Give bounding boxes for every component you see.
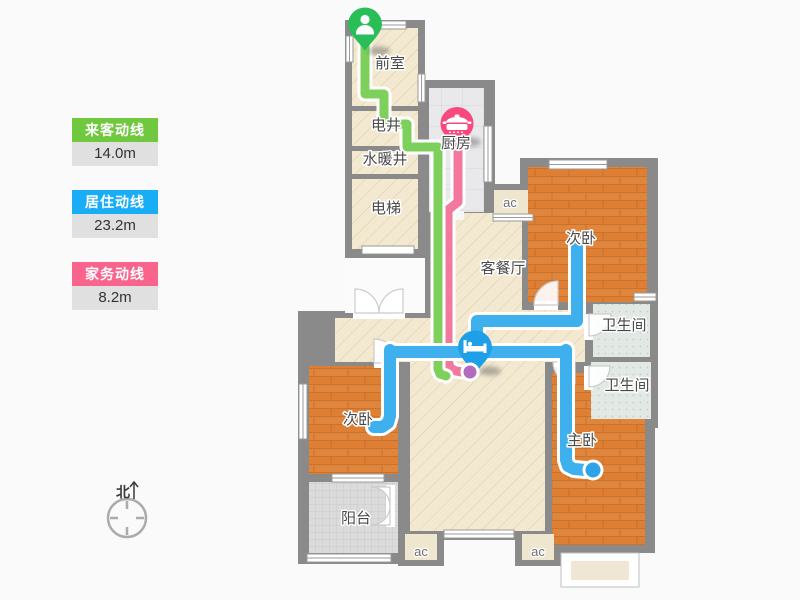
label-master-bedroom: 主卧: [567, 432, 597, 449]
floorplan-viewer: 来客动线 14.0m 居住动线 23.2m 家务动线 8.2m: [0, 0, 800, 600]
label-bathroom-upper: 卫生间: [601, 317, 646, 334]
label-plumbing-shaft: 水暖井: [362, 151, 407, 168]
housework-end-dot: [462, 364, 478, 380]
elevator-door: [362, 246, 414, 254]
label-bedroom-tr: 次卧: [566, 230, 596, 247]
window: [299, 384, 307, 439]
window: [484, 126, 492, 182]
window: [346, 36, 353, 62]
label-bathroom-lower: 卫生间: [604, 377, 649, 394]
window: [634, 293, 656, 301]
label-electric-shaft: 电井: [371, 117, 401, 134]
label-elevator: 电梯: [371, 200, 401, 217]
window: [444, 530, 514, 538]
label-bedroom-left: 次卧: [343, 411, 373, 428]
window: [307, 554, 391, 562]
label-kitchen: 厨房: [441, 135, 471, 152]
north-arrow-icon: [130, 482, 138, 499]
label-balcony: 阳台: [341, 510, 371, 527]
compass-ticks: [110, 501, 144, 535]
label-front-room: 前室: [375, 55, 405, 72]
window: [332, 474, 384, 482]
label-ac-bottom-left: ac: [414, 544, 428, 559]
living-end-dot: [584, 461, 602, 479]
bed-pin-shadow: [479, 367, 501, 376]
window: [493, 214, 533, 221]
label-ac-bottom-right: ac: [531, 544, 545, 559]
label-living-dining: 客餐厅: [480, 260, 525, 277]
compass: 北: [108, 482, 146, 537]
person-icon: [360, 15, 369, 24]
floor-plan: 前室 电井 水暖井 电梯 厨房 客餐厅 次卧 卫生间 卫生间 主卧 次卧 阳台 …: [0, 0, 800, 600]
window: [549, 160, 607, 169]
window: [418, 74, 425, 102]
bay-window: [561, 553, 639, 587]
label-ac-top: ac: [503, 195, 517, 210]
compass-north-label: 北: [116, 484, 130, 500]
